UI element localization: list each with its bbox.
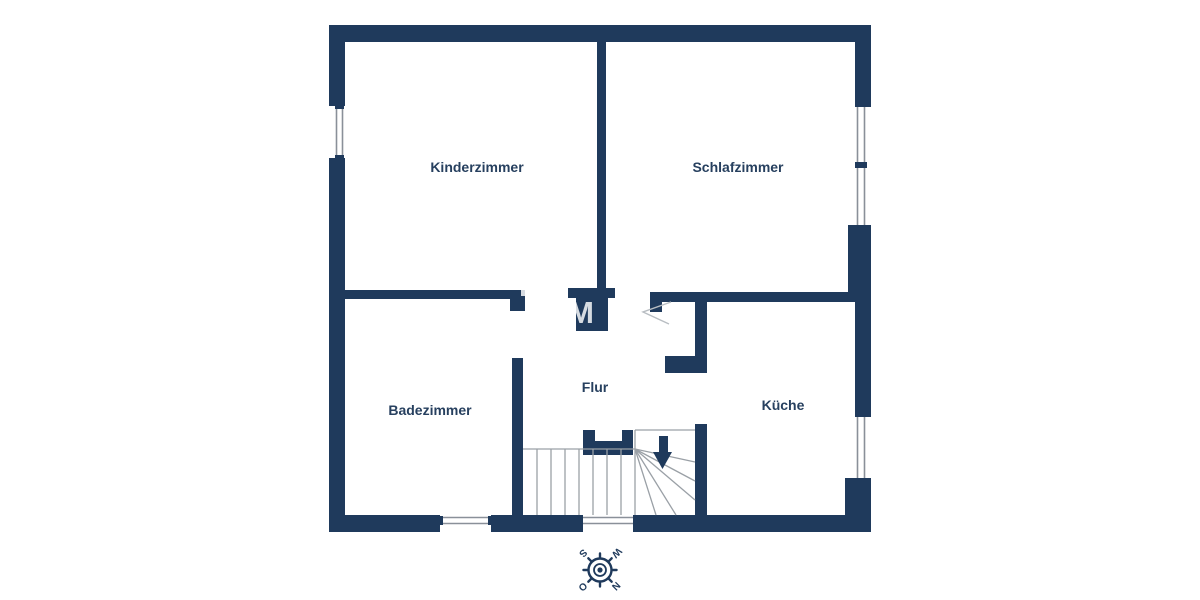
compass-south: S bbox=[576, 546, 589, 559]
label-kueche: Küche bbox=[762, 397, 805, 413]
label-flur: Flur bbox=[582, 379, 609, 395]
label-badezimmer: Badezimmer bbox=[388, 402, 472, 418]
stairs-down-arrow-icon bbox=[653, 436, 672, 469]
window-kueche-right bbox=[858, 417, 865, 478]
watermark-text: OM bbox=[543, 295, 595, 330]
entry-opening-bottom bbox=[583, 518, 633, 524]
window-schlafzimmer-right bbox=[855, 107, 867, 225]
window-badezimmer-bottom bbox=[440, 516, 491, 525]
watermark: OM bbox=[521, 290, 595, 330]
label-kinderzimmer: Kinderzimmer bbox=[430, 159, 524, 175]
window-kinderzimmer-left bbox=[335, 106, 344, 158]
label-schlafzimmer: Schlafzimmer bbox=[692, 159, 784, 175]
compass-east: O bbox=[576, 580, 589, 593]
compass-rose-icon: N O S W bbox=[559, 528, 640, 600]
interior-walls bbox=[345, 42, 855, 515]
floor-plan: OM Kinderzimmer Schlafzimmer Badezimmer … bbox=[0, 0, 1200, 600]
floor-plan-page: OM Kinderzimmer Schlafzimmer Badezimmer … bbox=[0, 0, 1200, 600]
